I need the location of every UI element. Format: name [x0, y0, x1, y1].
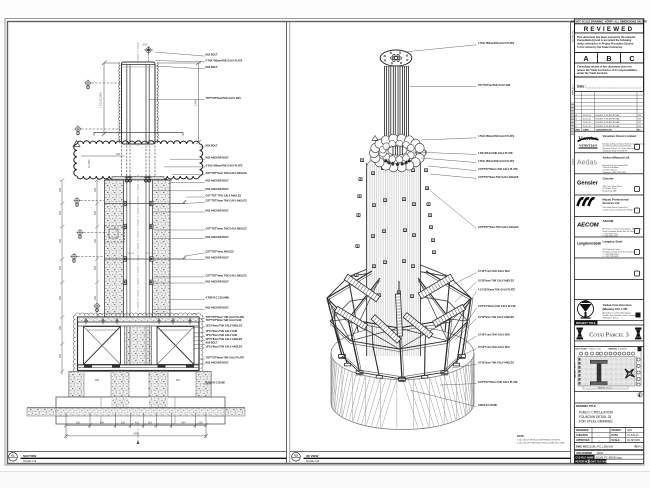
svg-text:12-06-15: 12-06-15	[583, 126, 592, 128]
svg-text:JW: JW	[638, 126, 641, 128]
svg-text:B: B	[606, 54, 611, 63]
svg-text:M10 ANCHOR BOLT: M10 ANCHOR BOLT	[206, 361, 230, 364]
svg-text:--: --	[599, 434, 601, 437]
svg-text:200: 200	[121, 422, 126, 425]
svg-text:500: 500	[59, 325, 62, 330]
svg-text:COTAI PARCEL 3: COTAI PARCEL 3	[589, 331, 628, 338]
svg-text:SCALE 1:10: SCALE 1:10	[23, 460, 37, 463]
svg-text:10*10*6mm THK GALV ANGLES: 10*10*6mm THK GALV ANGLES	[206, 324, 243, 327]
svg-text:This document has been revised: This document has been revised by the re…	[577, 35, 635, 39]
svg-text:19 Andar H, Macau: 19 Andar H, Macau	[603, 316, 619, 319]
svg-text:FOUNTAIN DETAIL 25: FOUNTAIN DETAIL 25	[579, 415, 611, 419]
svg-text:Hong Kong SAR: Hong Kong SAR	[603, 190, 618, 193]
svg-text:CHECKED: CHECKED	[576, 434, 588, 437]
svg-text:500: 500	[94, 210, 97, 215]
svg-text:M10 ANCHOR BOLT: M10 ANCHOR BOLT	[206, 157, 230, 160]
svg-text:2. ALL FILLET WELDED SHOULD BE: 2. ALL FILLET WELDED SHOULD BE 3mm THK.	[517, 442, 565, 445]
svg-text:ISSUED FOR APPROVAL: ISSUED FOR APPROVAL	[596, 125, 621, 128]
svg-text:500: 500	[59, 187, 62, 192]
svg-text:DATE: DATE	[612, 434, 619, 437]
svg-text:COT*TOT*6mm THK GALV ANGLES: COT*TOT*6mm THK GALV ANGLES	[206, 274, 248, 277]
svg-text:ISSUED FOR APPROVAL: ISSUED FOR APPROVAL	[596, 121, 621, 124]
svg-text:12-04-15: 12-04-15	[583, 119, 592, 121]
svg-text:PUBLIC CIRCULATION: PUBLIC CIRCULATION	[579, 410, 613, 414]
svg-text:10*10*6mm THK GALV ANGLES: 10*10*6mm THK GALV ANGLES	[206, 345, 243, 348]
svg-text:M10 ANCHOR BOLT: M10 ANCHOR BOLT	[206, 188, 230, 191]
svg-text:10*10*5mm THK GALV ANGLES: 10*10*5mm THK GALV ANGLES	[478, 362, 514, 365]
svg-text:500: 500	[94, 238, 97, 243]
svg-text:DWG NO: DWG NO	[576, 445, 587, 448]
svg-text:Aedas: Aedas	[577, 160, 597, 167]
svg-text:relieve the Trade Contractor o: relieve the Trade Contractor of its resp…	[577, 68, 638, 72]
svg-text:PARCEL 1, LOT 1: PARCEL 1, LOT 1	[574, 363, 577, 378]
svg-text:JW: JW	[638, 119, 641, 121]
svg-text:LWO: LWO	[627, 429, 632, 432]
svg-text:500: 500	[94, 295, 97, 300]
svg-text:DO NOT SCALE DRAWING. VERIFY A: DO NOT SCALE DRAWING. VERIFY ALL DIMENSI…	[571, 20, 647, 24]
svg-text:JOB NUMBER: JOB NUMBER	[576, 452, 592, 455]
svg-text:C: C	[629, 54, 634, 63]
svg-text:4 THK 450mmTHK GALV PLATE: 4 THK 450mmTHK GALV PLATE	[206, 59, 243, 62]
svg-text:COT*TOT*6mm ANGLES: COT*TOT*6mm ANGLES	[206, 250, 235, 253]
svg-text:COT*TOT*6mm THK GALV ANGLES: COT*TOT*6mm THK GALV ANGLES	[478, 226, 519, 229]
svg-text:ISSUED FOR APPROVAL: ISSUED FOR APPROVAL	[596, 118, 621, 121]
svg-text:1. ALL BOLT SHOULD BE FIXING O: 1. ALL BOLT SHOULD BE FIXING ON SITE.	[517, 439, 561, 442]
svg-text:PROJECT TITLE: PROJECT TITLE	[576, 322, 596, 325]
svg-text:14-JUN-15: 14-JUN-15	[627, 434, 639, 437]
svg-text:FOR STEEL DRAWING: FOR STEEL DRAWING	[579, 419, 613, 423]
svg-text:COT*TOT*6mm THK GALV ANGLES: COT*TOT*6mm THK GALV ANGLES	[206, 172, 248, 175]
svg-text:KEY PLAN: KEY PLAN	[576, 347, 587, 350]
svg-text:4 THK 450mmTHK GALV PLATE: 4 THK 450mmTHK GALV PLATE	[478, 42, 515, 45]
svg-text:NOTE:: NOTE:	[517, 435, 525, 438]
svg-text:TYP. 50: TYP. 50	[146, 253, 154, 255]
svg-text:SECTION: SECTION	[23, 454, 36, 458]
svg-text:M10 ANCHOR BOLT: M10 ANCHOR BOLT	[206, 236, 230, 239]
svg-text:C: C	[641, 445, 643, 449]
svg-text:M10 ANCHOR BOLT: M10 ANCHOR BOLT	[206, 280, 230, 283]
svg-text:4 THK 450mmTHK GALV PLATE: 4 THK 450mmTHK GALV PLATE	[478, 135, 515, 138]
svg-text:CAD FILE NAME: CAD FILE NAME	[576, 456, 594, 459]
svg-text:--: --	[599, 439, 601, 442]
svg-text:DRAWN: DRAWN	[612, 429, 621, 432]
svg-text:PARCEL 2 LOT 1: PARCEL 2 LOT 1	[598, 387, 613, 390]
svg-text:COT*10*10mm THK GALV PLATE: COT*10*10mm THK GALV PLATE	[478, 305, 516, 308]
svg-text:500: 500	[59, 353, 62, 358]
svg-text:TYP. 50: TYP. 50	[126, 253, 134, 255]
svg-text:!: !	[75, 143, 76, 147]
svg-text:10*10*6mm THK GALV SHS: 10*10*6mm THK GALV SHS	[206, 334, 238, 337]
svg-text:status referred to in Projec: status referred to in Project Procedure …	[577, 42, 634, 46]
svg-text:A2500 R.C BASE: A2500 R.C BASE	[478, 404, 498, 407]
svg-text:SCALE 1:7500: SCALE 1:7500	[589, 347, 602, 350]
svg-text:COT*TOT*6mm THK GALV ANGLES: COT*TOT*6mm THK GALV ANGLES	[206, 200, 248, 203]
svg-text:500: 500	[59, 295, 62, 300]
svg-text:3110/B_PC_B5/200.dwg: 3110/B_PC_B5/200.dwg	[596, 456, 623, 459]
svg-text:10*10*6mm THK GALV ANGLES: 10*10*6mm THK GALV ANGLES	[206, 338, 243, 341]
svg-text:DESIGNED: DESIGNED	[576, 429, 589, 432]
svg-text:500: 500	[94, 187, 97, 192]
svg-text:500: 500	[94, 265, 97, 270]
svg-text:10*10*6mm THK GALV SHS: 10*10*6mm THK GALV SHS	[206, 330, 238, 333]
svg-text:3D VIEW: 3D VIEW	[306, 454, 319, 458]
svg-text:Langdon Seah: Langdon Seah	[603, 240, 623, 244]
svg-text:under the Trade Contract.: under the Trade Contract.	[577, 71, 608, 75]
svg-text:PARCEL 1, LOT 2: PARCEL 1, LOT 2	[609, 347, 628, 350]
svg-text:Centro Comercial Hopewell, 13: Centro Comercial Hopewell, 13 A-B, Macau	[603, 208, 639, 211]
svg-text:864: 864	[176, 378, 181, 382]
svg-text:A1 TBD: A1 TBD	[88, 159, 91, 168]
svg-text:4 SHS 450mmTHK GALV PLATE: 4 SHS 450mmTHK GALV PLATE	[206, 164, 243, 167]
svg-text:Gensler: Gensler	[577, 181, 599, 187]
svg-text:TOT*TOT*6mm THK GALV PLATE: TOT*TOT*6mm THK GALV PLATE	[206, 356, 245, 359]
svg-text:M10: M10	[143, 43, 149, 47]
svg-text:Consultant review of this docu: Consultant review of this document does …	[577, 64, 632, 68]
svg-text:Venetian Orient Limited: Venetian Orient Limited	[603, 134, 637, 138]
svg-text:12-05-15: 12-05-15	[583, 122, 592, 124]
svg-text:500: 500	[59, 265, 62, 270]
svg-text:Gensler: Gensler	[603, 176, 615, 180]
svg-text:31126: 31126	[597, 452, 604, 455]
svg-text:500: 500	[59, 210, 62, 215]
svg-text:Services Ltd.: Services Ltd.	[603, 201, 621, 205]
svg-text:200: 200	[148, 422, 153, 425]
svg-text:REVIEWED: REVIEWED	[584, 26, 635, 33]
svg-text:COT*TOT* THK GALV ANGLES: COT*TOT* THK GALV ANGLES	[206, 194, 242, 197]
svg-text:DWG FILE NAME: DWG FILE NAME	[591, 461, 610, 464]
svg-text:SCALE: SCALE	[612, 439, 621, 442]
svg-text:VENETIAN: VENETIAN	[579, 144, 597, 148]
svg-text:AECOM: AECOM	[603, 219, 614, 223]
svg-text:APPROVED: APPROVED	[576, 439, 590, 442]
svg-text:M10 ANCHOR BOLT: M10 ANCHOR BOLT	[206, 257, 230, 260]
svg-text:TOT*TOT*6mmTHK GALV SHS: TOT*TOT*6mmTHK GALV SHS	[206, 97, 242, 100]
svg-text:AECOM: AECOM	[576, 223, 599, 229]
svg-text:500: 500	[59, 238, 62, 243]
svg-text:COT*TOT*6mm THK GALV ANGLES: COT*TOT*6mm THK GALV ANGLES	[206, 227, 248, 230]
svg-text:AS SHOWN: AS SHOWN	[627, 439, 640, 442]
svg-text:JW: JW	[638, 115, 641, 117]
svg-text:1 070 (1,545): 1 070 (1,545)	[99, 92, 103, 108]
svg-text:10*10*5 mm THK GALV SHS: 10*10*5 mm THK GALV SHS	[478, 333, 510, 336]
svg-text:REV: REV	[635, 445, 640, 448]
svg-text:844: 844	[100, 422, 105, 425]
svg-text:10*10*5 mm THK GALV SHS: 10*10*5 mm THK GALV SHS	[478, 346, 510, 349]
svg-text:TOT*TOTmmTHK GALV SHS: TOT*TOTmmTHK GALV SHS	[478, 84, 511, 87]
svg-text:COT*TOT*50mm THK GALV PLATE: COT*TOT*50mm THK GALV PLATE	[478, 381, 518, 384]
svg-text:COT*TOT*6mm THK GALV ANGLES: COT*TOT*6mm THK GALV ANGLES	[478, 176, 519, 179]
svg-text:5.4 for action by the Trade Co: 5.4 for action by the Trade Contractor.	[577, 45, 623, 49]
svg-text:Consultants(s) and is accorded: Consultants(s) and is accorded the follo…	[577, 38, 632, 42]
svg-text:10*10*5mm THK GALV ANGLES: 10*10*5mm THK GALV ANGLES	[478, 316, 514, 319]
svg-text:M10 ANCHOR BOLT: M10 ANCHOR BOLT	[206, 209, 230, 212]
svg-text:150: 150	[116, 153, 121, 156]
svg-text:2840: 2840	[133, 433, 139, 436]
svg-text:COT*TOT*50mm THK GALV PLATE: COT*TOT*50mm THK GALV PLATE	[478, 168, 518, 171]
svg-text:12-03-15: 12-03-15	[583, 115, 592, 117]
svg-text:M10 ANCHOR BOLT: M10 ANCHOR BOLT	[206, 180, 230, 183]
svg-text:4 TBD R.C COLUMN: 4 TBD R.C COLUMN	[206, 297, 230, 300]
svg-text:452: 452	[135, 422, 140, 425]
svg-text:M10 ANCHOR BOLT: M10 ANCHOR BOLT	[206, 307, 230, 310]
svg-text:02: 02	[294, 454, 298, 458]
svg-text:4 THK 450mmTHK GALV PLATE: 4 THK 450mmTHK GALV PLATE	[478, 160, 515, 163]
svg-text:4 BK 450mmTHK GALV PLATE: 4 BK 450mmTHK GALV PLATE	[478, 152, 513, 155]
svg-text:M10 BOLT: M10 BOLT	[206, 342, 218, 345]
svg-text:M10 BOLT: M10 BOLT	[206, 144, 218, 147]
svg-text:ISSUED FOR APPROVAL: ISSUED FOR APPROVAL	[596, 114, 621, 117]
svg-text:10*10*5 mm THK GALV SHS: 10*10*5 mm THK GALV SHS	[478, 270, 510, 273]
svg-text:3110/B_PCJ_B5/200: 3110/B_PCJ_B5/200	[587, 444, 614, 448]
svg-text:4 10*10*50mm THK GALV PLATE: 4 10*10*50mm THK GALV PLATE	[478, 289, 516, 292]
svg-text:JW: JW	[638, 122, 641, 124]
svg-text:200: 200	[199, 422, 204, 425]
svg-text:M10 BOLT: M10 BOLT	[206, 53, 218, 56]
svg-text:DATE: DATE	[583, 128, 589, 131]
svg-text:200: 200	[76, 422, 81, 425]
svg-text:REFERENCE: REFERENCE	[576, 462, 591, 464]
svg-text:DRAWING TITLE: DRAWING TITLE	[576, 405, 596, 408]
svg-text:Telephone:(853) 81 18 28 88: Telephone:(853) 81 18 28 88	[603, 151, 627, 153]
svg-text:1384: 1384	[194, 99, 198, 106]
svg-text:01: 01	[11, 454, 15, 458]
svg-text:844: 844	[181, 422, 186, 425]
svg-text:(Macau) CO. LTD.: (Macau) CO. LTD.	[603, 307, 629, 311]
svg-text:Aedas (Macau) Ltd.: Aedas (Macau) Ltd.	[603, 155, 631, 159]
svg-text:864: 864	[95, 378, 100, 382]
svg-text:A: A	[583, 54, 588, 63]
svg-text:PARCEL 3: PARCEL 3	[572, 84, 575, 95]
svg-text:Date :: Date :	[577, 85, 586, 89]
svg-text:10*10*5mm THK GALV ANGLES: 10*10*5mm THK GALV ANGLES	[478, 279, 514, 282]
svg-text:A2500 R.C BASE: A2500 R.C BASE	[206, 381, 226, 384]
svg-text:Langdon&Seah: Langdon&Seah	[577, 242, 601, 246]
svg-text:TOT*TOT*6mm THK GALV SHS: TOT*TOT*6mm THK GALV SHS	[206, 319, 242, 322]
svg-text:SCALE 1:20: SCALE 1:20	[306, 460, 320, 463]
svg-text:M10 BOLT: M10 BOLT	[206, 66, 218, 69]
